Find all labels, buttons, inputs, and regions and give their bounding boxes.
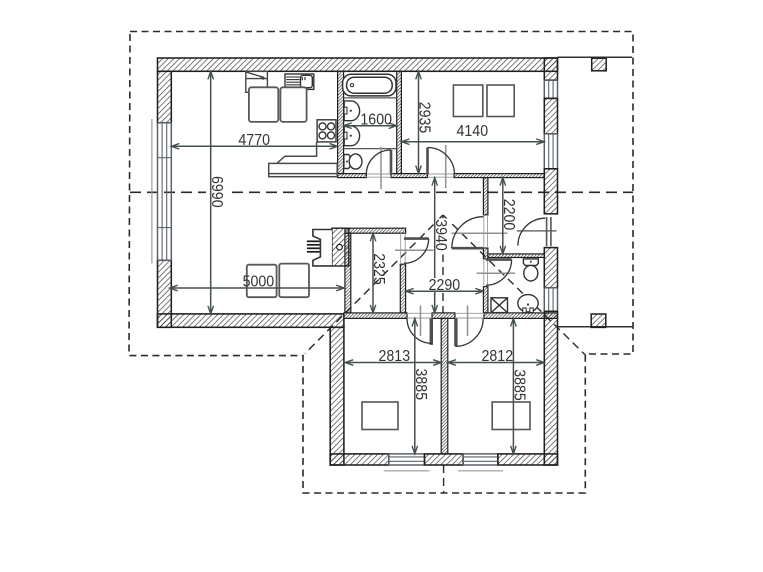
svg-text:5000: 5000 <box>243 274 275 291</box>
svg-text:4770: 4770 <box>238 132 270 149</box>
svg-text:2200: 2200 <box>500 199 517 231</box>
svg-text:2290: 2290 <box>429 277 461 294</box>
svg-text:1600: 1600 <box>360 111 392 128</box>
svg-text:2813: 2813 <box>379 348 411 365</box>
svg-text:4140: 4140 <box>457 123 489 140</box>
svg-text:2325: 2325 <box>370 253 387 285</box>
svg-text:3940: 3940 <box>432 219 449 251</box>
svg-text:2812: 2812 <box>482 348 514 365</box>
svg-text:3885: 3885 <box>412 369 429 401</box>
svg-text:3885: 3885 <box>511 369 528 401</box>
svg-text:2935: 2935 <box>416 102 433 134</box>
svg-text:6990: 6990 <box>208 176 225 208</box>
